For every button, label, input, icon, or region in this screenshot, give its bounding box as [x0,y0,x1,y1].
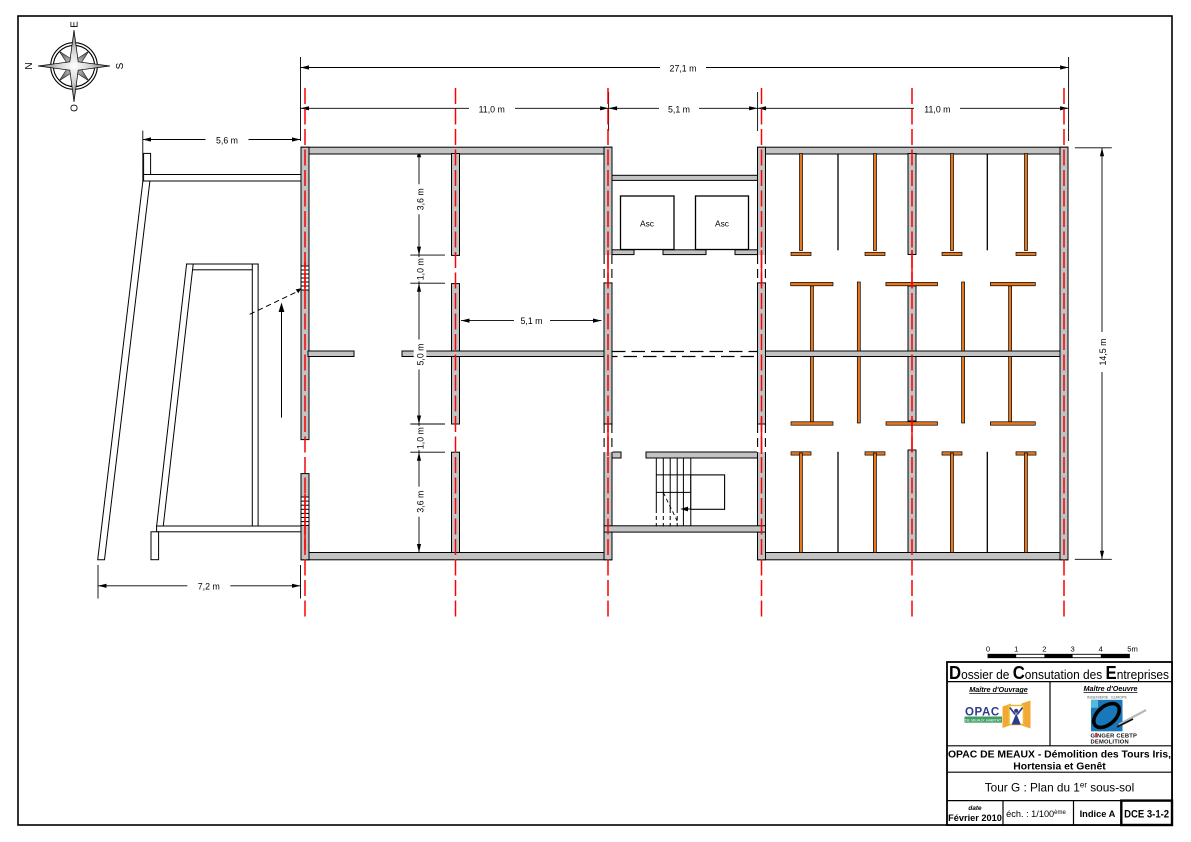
svg-text:0: 0 [986,645,990,654]
svg-text:Hortensia et Genêt: Hortensia et Genêt [1013,762,1106,773]
svg-text:4: 4 [1099,645,1103,654]
svg-text:INGENIERIE : EUROPE: INGENIERIE : EUROPE [1087,695,1127,699]
svg-text:N: N [24,62,35,69]
svg-text:Asc: Asc [715,218,729,228]
svg-text:E: E [70,21,81,28]
svg-text:1,0 m: 1,0 m [415,427,425,449]
svg-text:Février 2010: Février 2010 [948,813,1002,823]
svg-text:O: O [70,104,81,112]
svg-text:Tour G : Plan du 1er sous-sol: Tour G : Plan du 1er sous-sol [985,781,1134,795]
svg-text:DE MEAUX HABITAT: DE MEAUX HABITAT [965,718,1002,722]
svg-text:1,0 m: 1,0 m [415,258,425,280]
svg-text:5,0 m: 5,0 m [415,343,425,365]
svg-text:7,2 m: 7,2 m [198,582,220,592]
svg-text:Indice A: Indice A [1080,809,1116,819]
svg-text:3: 3 [1070,645,1074,654]
svg-text:DCE 3-1-2: DCE 3-1-2 [1124,809,1169,821]
svg-text:3,6 m: 3,6 m [415,491,425,513]
svg-text:5,1 m: 5,1 m [520,316,542,326]
svg-text:3,6 m: 3,6 m [415,188,425,210]
svg-text:DEMOLITION: DEMOLITION [1091,740,1129,746]
svg-text:5m: 5m [1127,645,1138,654]
svg-text:11,0 m: 11,0 m [924,104,950,114]
svg-text:27,1 m: 27,1 m [670,64,697,74]
svg-text:1: 1 [1014,645,1018,654]
svg-text:2: 2 [1042,645,1046,654]
svg-text:date: date [968,805,982,812]
svg-text:Maître d'Oeuvre: Maître d'Oeuvre [1083,684,1137,693]
svg-text:S: S [115,62,126,69]
svg-text:14,5 m: 14,5 m [1098,339,1108,366]
svg-text:11,0 m: 11,0 m [479,104,505,114]
svg-text:Maître d'Ouvrage: Maître d'Ouvrage [969,685,1027,694]
svg-text:5,6 m: 5,6 m [216,135,238,145]
svg-text:OPAC DE MEAUX - Démolition des: OPAC DE MEAUX - Démolition des Tours Iri… [948,750,1171,761]
svg-text:5,1 m: 5,1 m [668,104,690,114]
svg-text:Asc: Asc [640,218,654,228]
